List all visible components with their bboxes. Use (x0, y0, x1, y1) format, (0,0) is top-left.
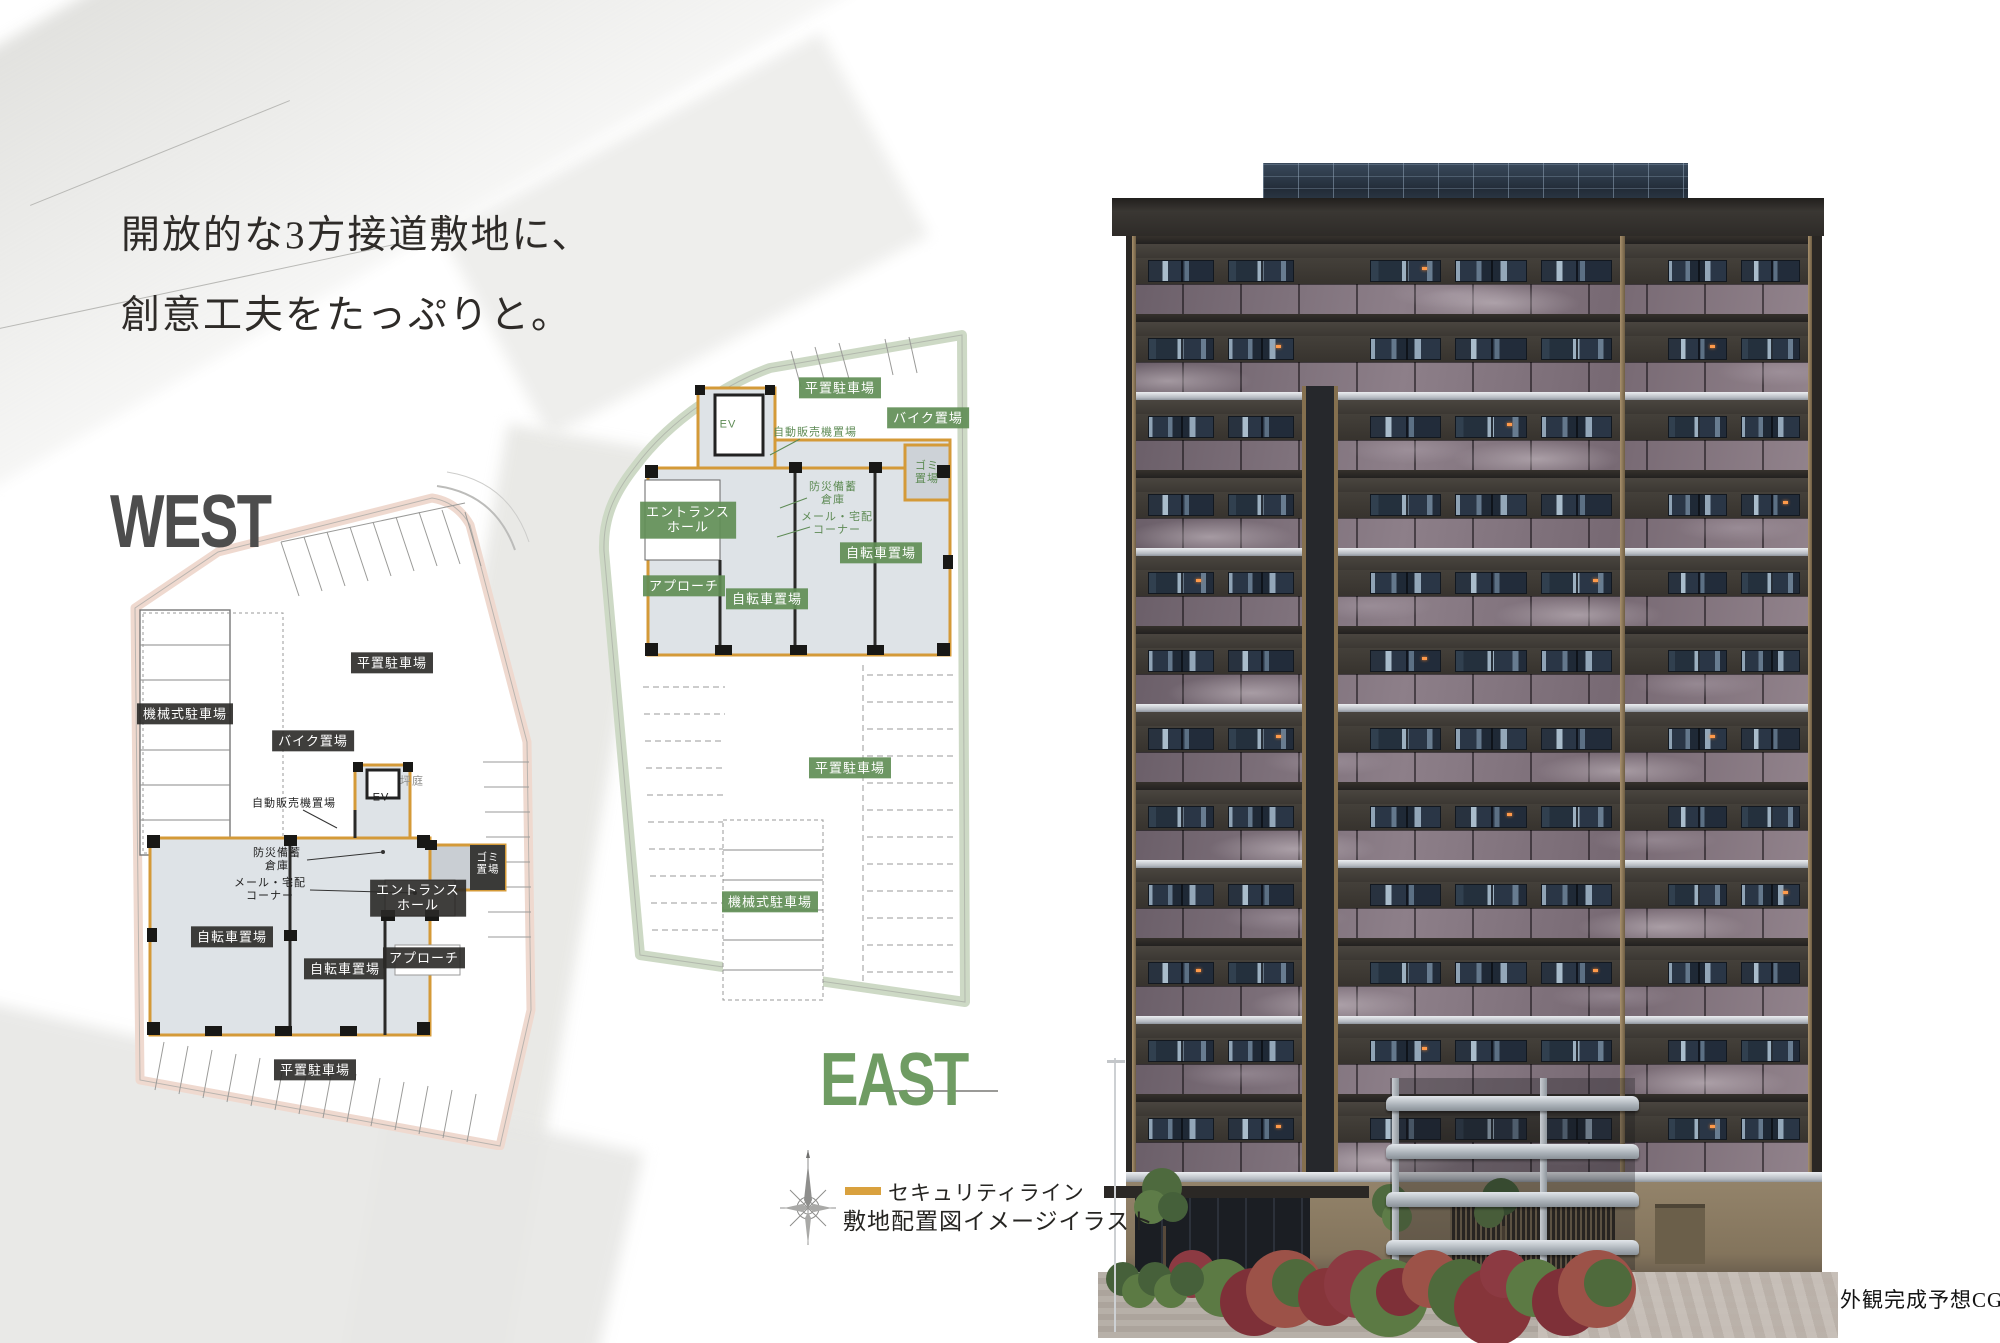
plan-label: ゴミ 置場 (477, 852, 500, 877)
facade-floor (1126, 860, 1822, 938)
window (1148, 494, 1214, 516)
window (1370, 728, 1441, 750)
balcony-glass (1126, 752, 1822, 783)
window (1541, 416, 1612, 438)
window (1741, 494, 1800, 516)
solar-panels (1263, 163, 1688, 201)
plan-label: アプローチ (383, 947, 465, 968)
window (1228, 416, 1294, 438)
window (1228, 884, 1294, 906)
parking-shelf (1386, 1192, 1639, 1207)
facade-floor (1126, 392, 1822, 470)
facade-floor (1126, 314, 1822, 392)
plan-label: 自動販売機置場 (252, 798, 336, 811)
balcony-glass (1126, 362, 1822, 393)
window (1455, 962, 1526, 984)
window (1668, 806, 1727, 828)
window (1455, 572, 1526, 594)
plan-label: 平置駐車場 (809, 757, 891, 778)
window (1370, 572, 1441, 594)
window (1228, 494, 1294, 516)
plan-label: 自転車置場 (191, 926, 273, 947)
window (1228, 338, 1294, 360)
bronze-column (1620, 236, 1625, 1172)
window (1455, 1040, 1526, 1062)
plan-label: 自転車置場 (726, 588, 808, 609)
plan-label: 自動販売機置場 (773, 427, 857, 440)
window (1370, 1040, 1441, 1062)
window (1228, 1040, 1294, 1062)
plan-label: 坪庭 (400, 776, 424, 789)
window (1148, 338, 1214, 360)
plan-label: バイク置場 (272, 730, 354, 751)
plan-label: エントランス ホール (370, 880, 466, 917)
window (1668, 962, 1727, 984)
plan-label: メール・宅配 コーナー (234, 877, 306, 903)
security-line-swatch (845, 1187, 881, 1195)
window (1148, 416, 1214, 438)
balcony-glass (1126, 596, 1822, 627)
shrub (1170, 1262, 1204, 1296)
window (1455, 416, 1526, 438)
page-headline: 開放的な3方接道敷地に、 創意工夫をたっぷりと。 (121, 196, 592, 356)
window (1741, 806, 1800, 828)
window (1541, 572, 1612, 594)
window (1741, 338, 1800, 360)
facade-floor (1126, 236, 1822, 314)
window (1668, 494, 1727, 516)
plan-label: アプローチ (643, 575, 725, 596)
parking-shelf (1386, 1096, 1639, 1111)
headline-line1: 開放的な3方接道敷地に、 (121, 214, 592, 257)
window (1228, 962, 1294, 984)
plan-label: 平置駐車場 (799, 377, 881, 398)
window (1228, 1118, 1294, 1140)
mechanical-parking-structure (1390, 1078, 1635, 1270)
facade-floor (1126, 626, 1822, 704)
window (1541, 1040, 1612, 1062)
plan-label: エントランス ホール (640, 502, 736, 539)
window (1455, 260, 1526, 282)
window (1668, 884, 1727, 906)
light-pole (1114, 1058, 1116, 1332)
plan-label: ゴミ 置場 (915, 460, 939, 486)
window (1541, 650, 1612, 672)
rendering-caption: 外観完成予想CG (1840, 1284, 2000, 1314)
window (1741, 962, 1800, 984)
legend-caption: 敷地配置図イメージイラスト (843, 1202, 1154, 1236)
facade-floor (1126, 704, 1822, 782)
facade-floor (1126, 782, 1822, 860)
window (1541, 494, 1612, 516)
window (1228, 728, 1294, 750)
window (1541, 962, 1612, 984)
window (1741, 1040, 1800, 1062)
window (1455, 728, 1526, 750)
plan-label: メール・宅配 コーナー (801, 511, 873, 537)
building-facade (1126, 236, 1822, 1172)
window (1668, 650, 1727, 672)
plan-label: 平置駐車場 (274, 1059, 356, 1080)
window (1741, 728, 1800, 750)
window (1668, 260, 1727, 282)
parking-shelf (1386, 1144, 1639, 1159)
window (1228, 806, 1294, 828)
facade-floor (1126, 548, 1822, 626)
window (1668, 728, 1727, 750)
plan-label: バイク置場 (887, 407, 969, 428)
window (1148, 962, 1214, 984)
balcony-glass (1126, 830, 1822, 861)
window (1455, 338, 1526, 360)
window (1541, 728, 1612, 750)
window (1148, 572, 1214, 594)
window (1541, 338, 1612, 360)
balcony-glass (1126, 518, 1822, 549)
window (1455, 884, 1526, 906)
window (1148, 1118, 1214, 1140)
east-plan-labels: 平置駐車場バイク置場自動販売機置場EVゴミ 置場防災備蓄 倉庫エントランス ホー… (595, 255, 1025, 1015)
plan-label: 防災備蓄 倉庫 (253, 847, 301, 873)
compass-rose-icon (778, 1150, 838, 1245)
window (1148, 260, 1214, 282)
window (1668, 338, 1727, 360)
window (1541, 806, 1612, 828)
plan-label: EV (720, 419, 737, 432)
window (1741, 260, 1800, 282)
window (1668, 1040, 1727, 1062)
balcony-glass (1126, 440, 1822, 471)
window (1668, 416, 1727, 438)
plan-label: 機械式駐車場 (722, 891, 818, 912)
window (1228, 260, 1294, 282)
headline-line2: 創意工夫をたっぷりと。 (121, 294, 572, 337)
plan-label: 平置駐車場 (351, 652, 433, 673)
plan-label: 自転車置場 (840, 542, 922, 563)
window (1148, 806, 1214, 828)
window (1541, 260, 1612, 282)
west-title: WEST (110, 484, 270, 559)
window (1148, 1040, 1214, 1062)
window (1668, 572, 1727, 594)
window (1741, 572, 1800, 594)
window (1148, 650, 1214, 672)
page: 開放的な3方接道敷地に、 創意工夫をたっぷりと。 WEST (0, 0, 2000, 1343)
roof-parapet (1112, 198, 1824, 236)
plan-label: 自転車置場 (304, 958, 386, 979)
window (1370, 494, 1441, 516)
window (1370, 884, 1441, 906)
east-site-plan: 平置駐車場バイク置場自動販売機置場EVゴミ 置場防災備蓄 倉庫エントランス ホー… (595, 255, 1025, 1015)
plan-label: 機械式駐車場 (137, 703, 233, 724)
window (1370, 650, 1441, 672)
balcony-glass (1126, 674, 1822, 705)
bronze-column (1132, 236, 1136, 1172)
window (1228, 650, 1294, 672)
east-title: EAST (820, 1042, 968, 1117)
window (1455, 494, 1526, 516)
window (1370, 260, 1441, 282)
plan-label: 防災備蓄 倉庫 (809, 481, 857, 507)
balcony-glass (1126, 908, 1822, 939)
window (1148, 884, 1214, 906)
core-strip (1302, 386, 1338, 1172)
balcony-glass (1126, 284, 1822, 315)
hedge-bush (1584, 1259, 1632, 1307)
window (1741, 650, 1800, 672)
window (1455, 650, 1526, 672)
window (1455, 806, 1526, 828)
hedge (1168, 1244, 1618, 1330)
window (1741, 884, 1800, 906)
balcony-glass (1126, 986, 1822, 1017)
window (1370, 806, 1441, 828)
window (1741, 416, 1800, 438)
window (1228, 572, 1294, 594)
window (1148, 728, 1214, 750)
window (1370, 962, 1441, 984)
window (1370, 338, 1441, 360)
window (1541, 884, 1612, 906)
plan-label: EV (373, 792, 390, 805)
facade-edge-right (1812, 236, 1822, 1172)
window (1668, 1118, 1727, 1140)
service-door (1655, 1204, 1705, 1264)
facade-floor (1126, 470, 1822, 548)
facade-floor (1126, 938, 1822, 1016)
window (1370, 416, 1441, 438)
window (1741, 1118, 1800, 1140)
building-rendering (1098, 138, 1838, 1338)
